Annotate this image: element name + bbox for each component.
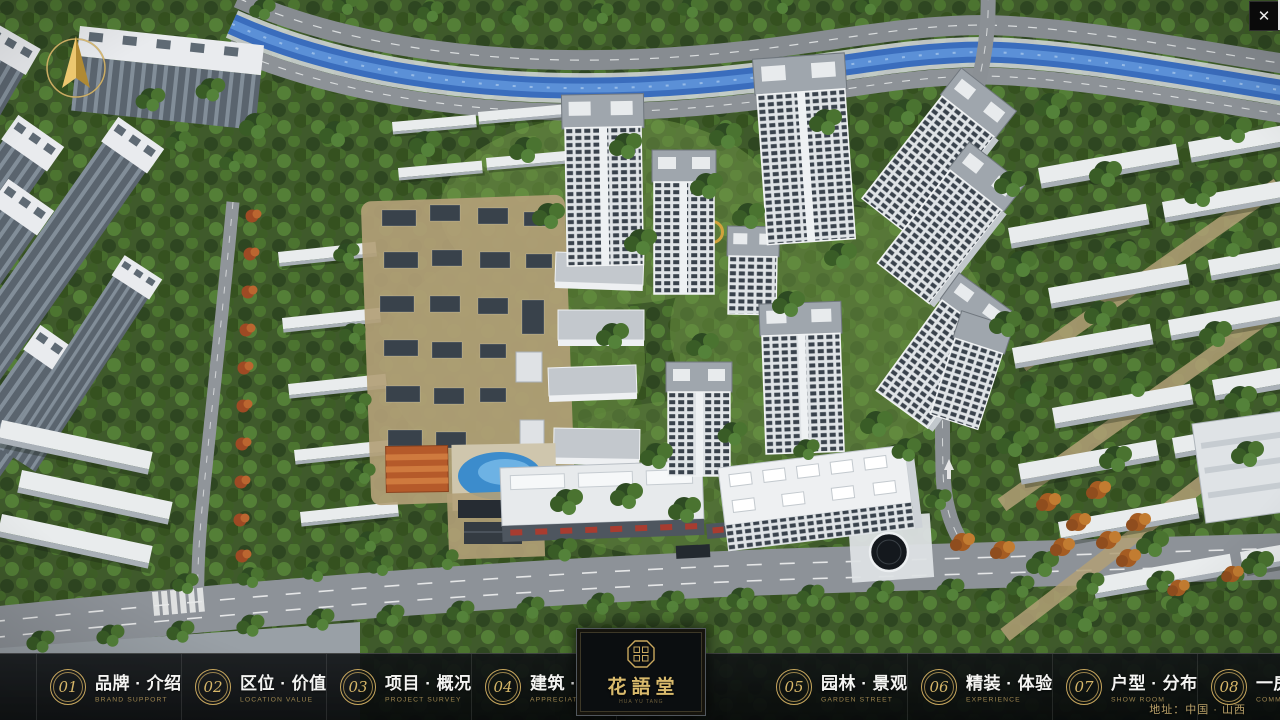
nav-number-badge: 06	[921, 669, 957, 705]
nav-title-zh: 户型 · 分布	[1111, 669, 1198, 694]
nav-item-garden[interactable]: 05 园林 · 景观 GARDEN STREET	[763, 654, 908, 720]
close-icon: ✕	[1258, 9, 1271, 24]
project-address: 地址：中国 · 山西	[1149, 701, 1246, 717]
nav-item-interior[interactable]: 06 精装 · 体验 EXPERIENCE	[908, 654, 1053, 720]
nav-item-project[interactable]: 03 项目 · 概况 PROJECT SURVEY	[327, 654, 472, 720]
nav-title-zh: 一房 · 一景	[1256, 669, 1280, 694]
nav-subtitle-en: BRAND SUPPORT	[95, 696, 168, 702]
aerial-masterplan-render[interactable]	[0, 0, 1280, 720]
nav-subtitle-en: COMMUNITY	[1256, 696, 1280, 702]
nav-number-badge: 02	[195, 669, 231, 705]
nav-subtitle-en: PROJECT SURVEY	[385, 696, 462, 702]
nav-number-badge: 05	[776, 669, 812, 705]
nav-number-badge: 08	[1211, 669, 1247, 705]
nav-number: 01	[58, 678, 77, 696]
project-logo[interactable]: 花語堂 HUA YU TANG	[576, 628, 706, 716]
nav-number-badge: 01	[50, 669, 86, 705]
nav-number: 07	[1074, 678, 1093, 696]
nav-group-left: 01 品牌 · 介绍 BRAND SUPPORT 02 区位 · 价值 LOCA…	[36, 654, 617, 720]
presentation-window: ✕ 01 品牌 · 介绍 BRAND SUPPORT 02 区位 · 价值 LO…	[0, 0, 1280, 720]
nav-number: 02	[203, 678, 222, 696]
nav-title-zh: 精装 · 体验	[966, 669, 1053, 694]
project-name: 花語堂	[602, 672, 679, 699]
nav-number: 06	[929, 678, 948, 696]
nav-number: 03	[348, 678, 367, 696]
nav-item-location[interactable]: 02 区位 · 价值 LOCATION VALUE	[182, 654, 327, 720]
vignette	[0, 0, 1280, 720]
close-button[interactable]: ✕	[1249, 1, 1279, 31]
nav-item-brand[interactable]: 01 品牌 · 介绍 BRAND SUPPORT	[37, 654, 182, 720]
nav-number: 08	[1219, 678, 1238, 696]
nav-number-badge: 04	[485, 669, 521, 705]
project-tagline: HUA YU TANG	[619, 699, 663, 702]
nav-number: 04	[493, 678, 512, 696]
logo-seal-icon	[626, 639, 656, 669]
north-compass-icon	[40, 30, 112, 102]
nav-number-badge: 07	[1066, 669, 1102, 705]
nav-number-badge: 03	[340, 669, 376, 705]
nav-number: 05	[784, 678, 803, 696]
nav-subtitle-en: EXPERIENCE	[966, 696, 1025, 702]
nav-subtitle-en: GARDEN STREET	[821, 696, 893, 702]
nav-subtitle-en: LOCATION VALUE	[240, 696, 313, 702]
